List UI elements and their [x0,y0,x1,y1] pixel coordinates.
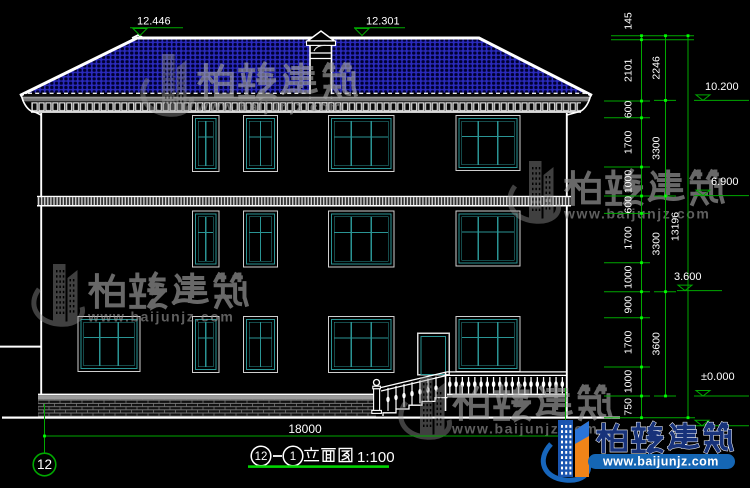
svg-text:3600: 3600 [651,332,663,356]
svg-text:145: 145 [623,12,635,30]
svg-text:12.301: 12.301 [366,16,400,28]
svg-text:6.900: 6.900 [711,176,739,188]
svg-text:18000: 18000 [288,422,322,436]
svg-text:1:100: 1:100 [357,449,395,466]
svg-text:1000: 1000 [623,370,635,394]
svg-text:12: 12 [255,451,268,463]
svg-text:www.baijunjz.com: www.baijunjz.com [602,455,719,469]
svg-text:±0.000: ±0.000 [701,371,735,383]
svg-text:10.200: 10.200 [705,81,739,93]
svg-text:www.baijunjz.com: www.baijunjz.com [196,99,343,115]
svg-text:900: 900 [623,296,635,314]
svg-text:13196: 13196 [670,212,682,241]
svg-text:12: 12 [37,457,52,472]
svg-text:12.446: 12.446 [137,16,171,28]
svg-text:1000: 1000 [623,170,635,194]
svg-text:2246: 2246 [651,56,663,80]
svg-text:3.600: 3.600 [674,271,702,283]
svg-text:1700: 1700 [623,131,635,155]
svg-text:3300: 3300 [651,232,663,256]
svg-text:3300: 3300 [651,136,663,160]
svg-text:600: 600 [623,100,635,118]
svg-text:1000: 1000 [623,265,635,289]
svg-text:2101: 2101 [623,58,635,82]
svg-text:600: 600 [623,196,635,214]
svg-text:1: 1 [290,451,296,463]
svg-text:www.baijunjz.com: www.baijunjz.com [87,309,234,325]
svg-text:1700: 1700 [623,226,635,250]
svg-text:750: 750 [623,398,635,416]
svg-text:1700: 1700 [623,331,635,355]
